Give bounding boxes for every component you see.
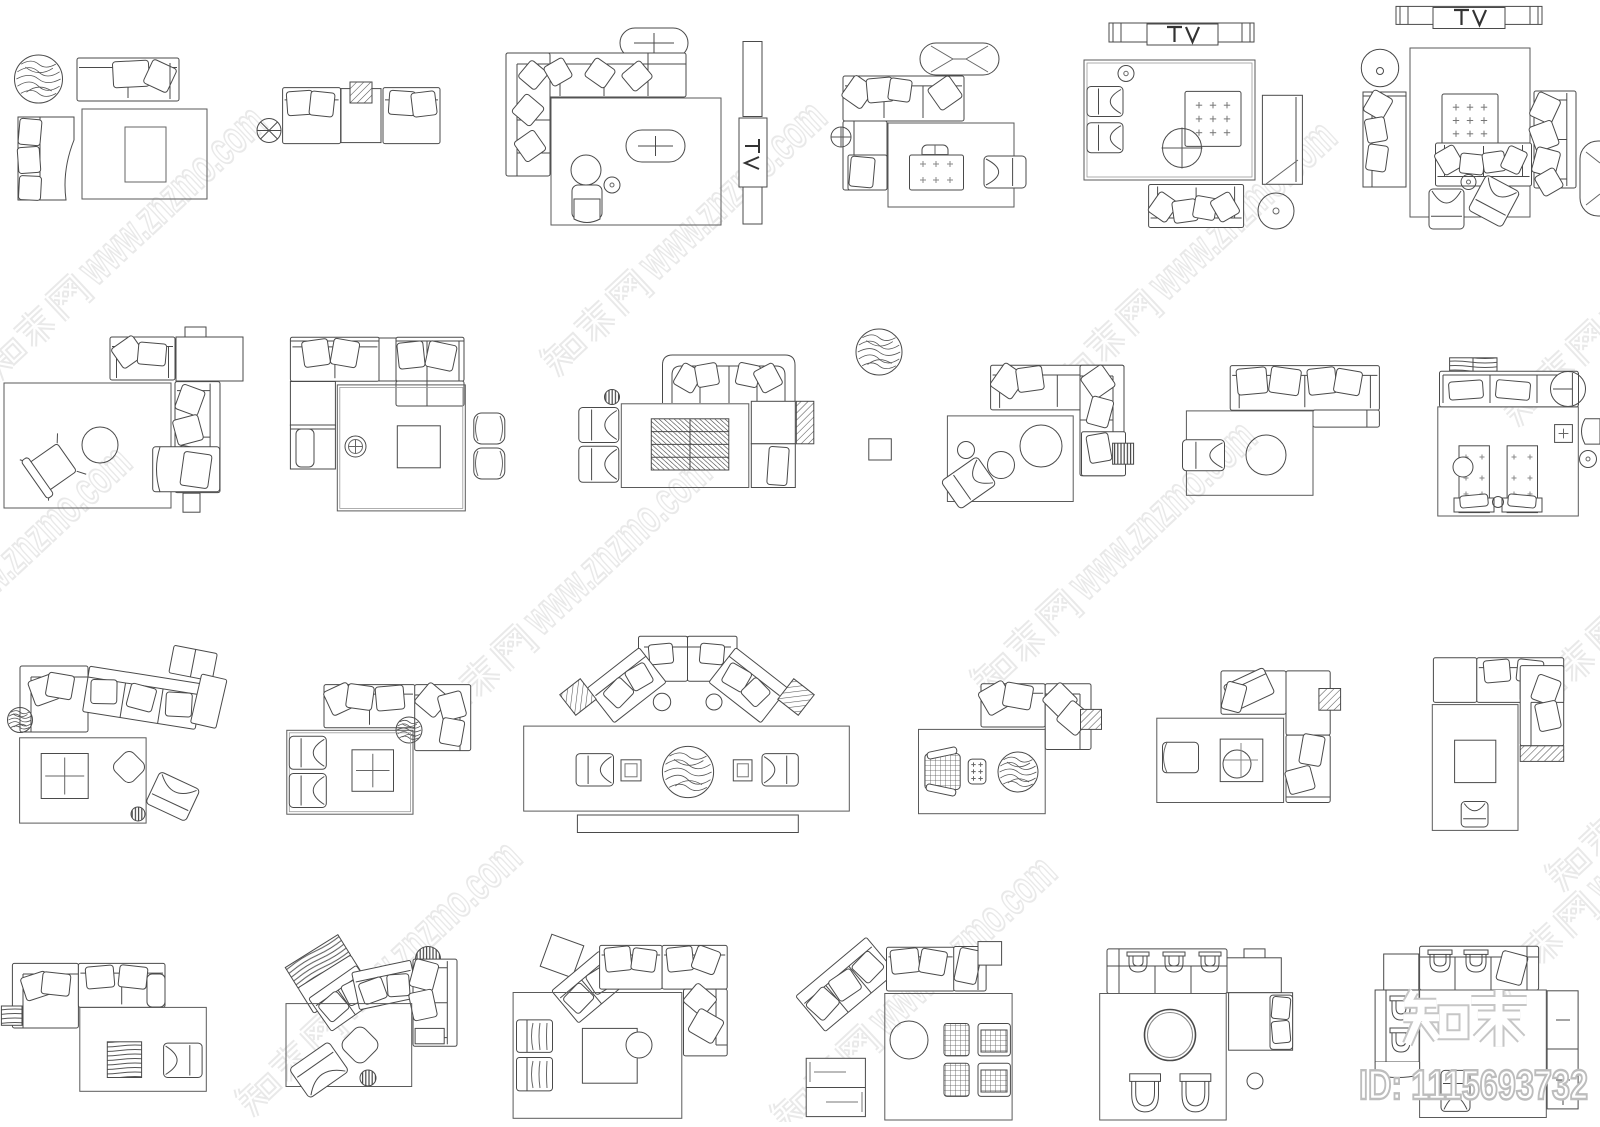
svg-text:ID: 1115693732: ID: 1115693732 — [1359, 1061, 1588, 1108]
